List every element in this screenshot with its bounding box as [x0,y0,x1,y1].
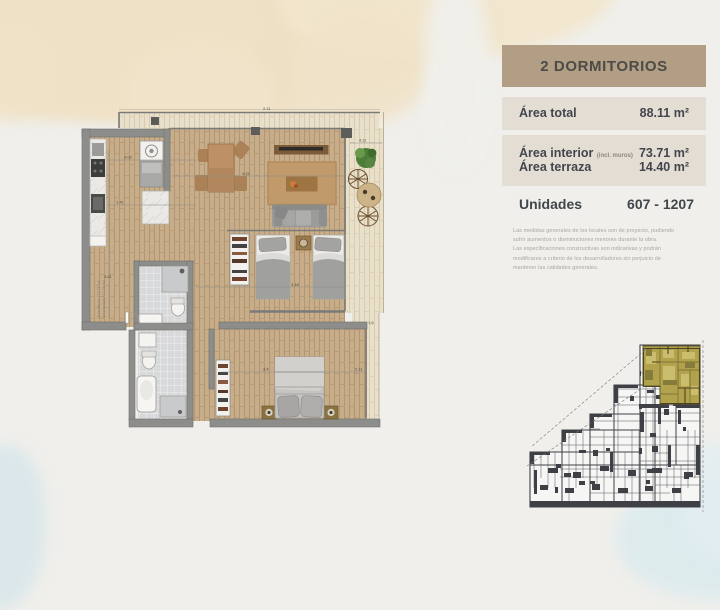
svg-text:4.23: 4.23 [242,171,251,176]
svg-text:3.19: 3.19 [291,282,300,287]
svg-text:4.11: 4.11 [359,138,367,143]
svg-text:3.4: 3.4 [263,367,269,372]
svg-text:2.11: 2.11 [263,106,271,111]
svg-text:Área terraza +14.40 m2: Área terraza +14.40 m2 [102,280,106,318]
svg-text:3.02: 3.02 [124,155,133,160]
svg-text:Área interior +73.71 m2: Área interior +73.71 m2 [97,280,101,318]
svg-text:2.1: 2.1 [151,118,157,123]
svg-text:1.6: 1.6 [368,320,374,325]
svg-text:3.61: 3.61 [104,274,113,279]
svg-text:2.11: 2.11 [355,367,363,372]
svg-text:1.41: 1.41 [116,200,125,205]
